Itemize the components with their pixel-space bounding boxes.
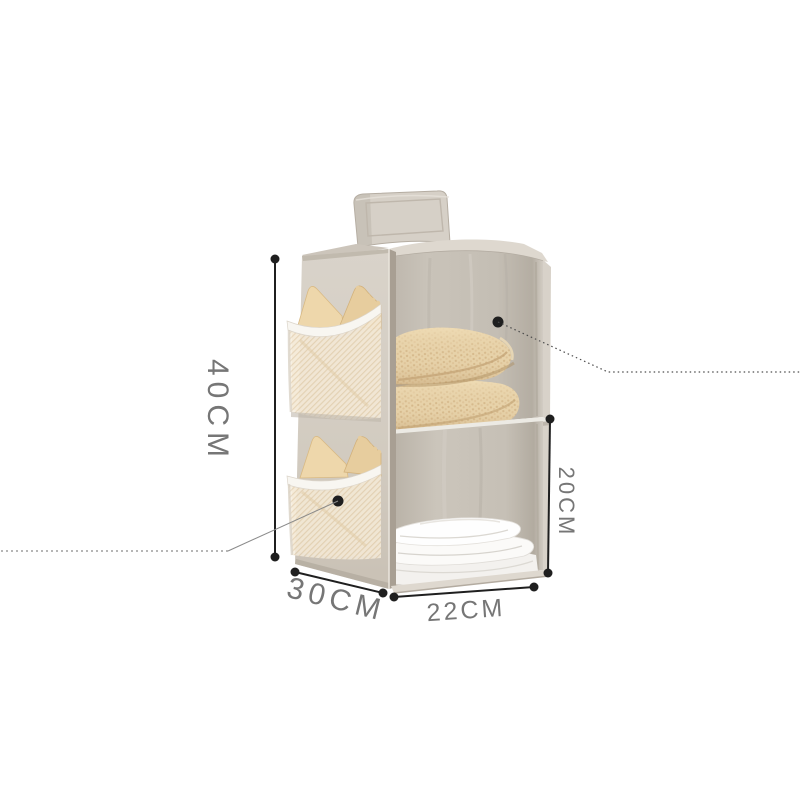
dimension-label-height: 40CM — [200, 359, 234, 463]
product-image-canvas: 40CM 30CM 22CM 20CM — [0, 0, 800, 800]
hanging-organizer — [287, 191, 551, 593]
hanging-strap — [354, 191, 450, 247]
height-dimension-line — [271, 255, 280, 562]
dimension-label-compartment-height: 20CM — [553, 467, 579, 538]
dimension-label-width: 22CM — [426, 594, 507, 628]
hanging-organizer-illustration — [0, 0, 800, 800]
opening-left-edge — [389, 249, 396, 589]
